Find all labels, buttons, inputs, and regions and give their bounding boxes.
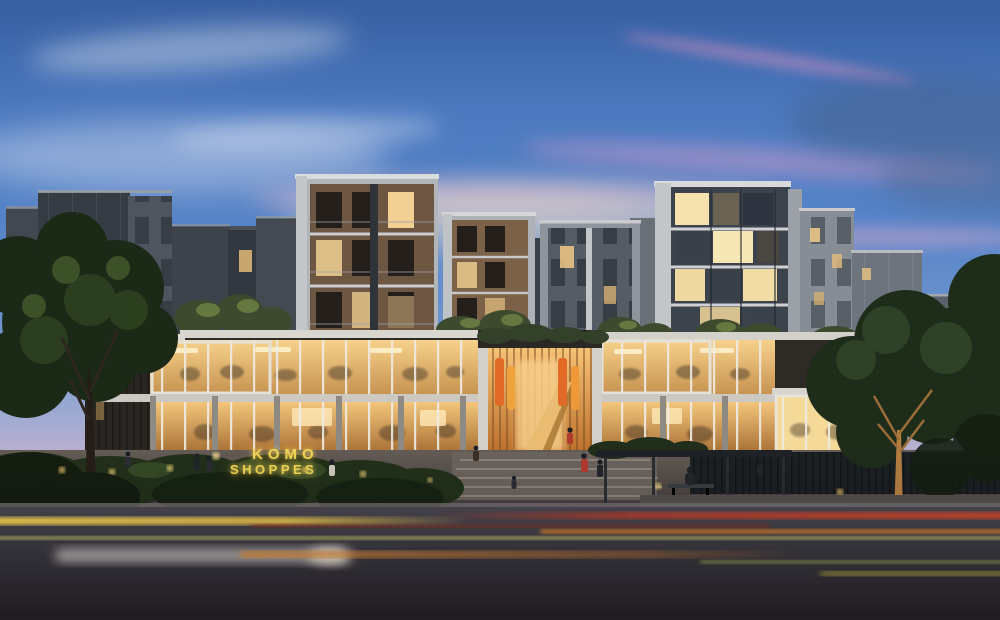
sign-line-komo: KOMO: [230, 446, 342, 463]
komo-shoppes-sign: KOMO SHOPPES: [230, 446, 342, 478]
road: [0, 495, 1000, 620]
rendered-building-scene: [0, 0, 1000, 620]
curb: [0, 503, 1000, 507]
right-apartment-block: [654, 181, 802, 343]
scene-komo-shoppes: KOMO SHOPPES: [0, 0, 1000, 620]
center-apartment-block: [295, 174, 439, 344]
sign-line-shoppes: SHOPPES: [230, 463, 342, 478]
entrance-atrium: [477, 324, 609, 454]
upper-storefronts: [150, 340, 775, 394]
